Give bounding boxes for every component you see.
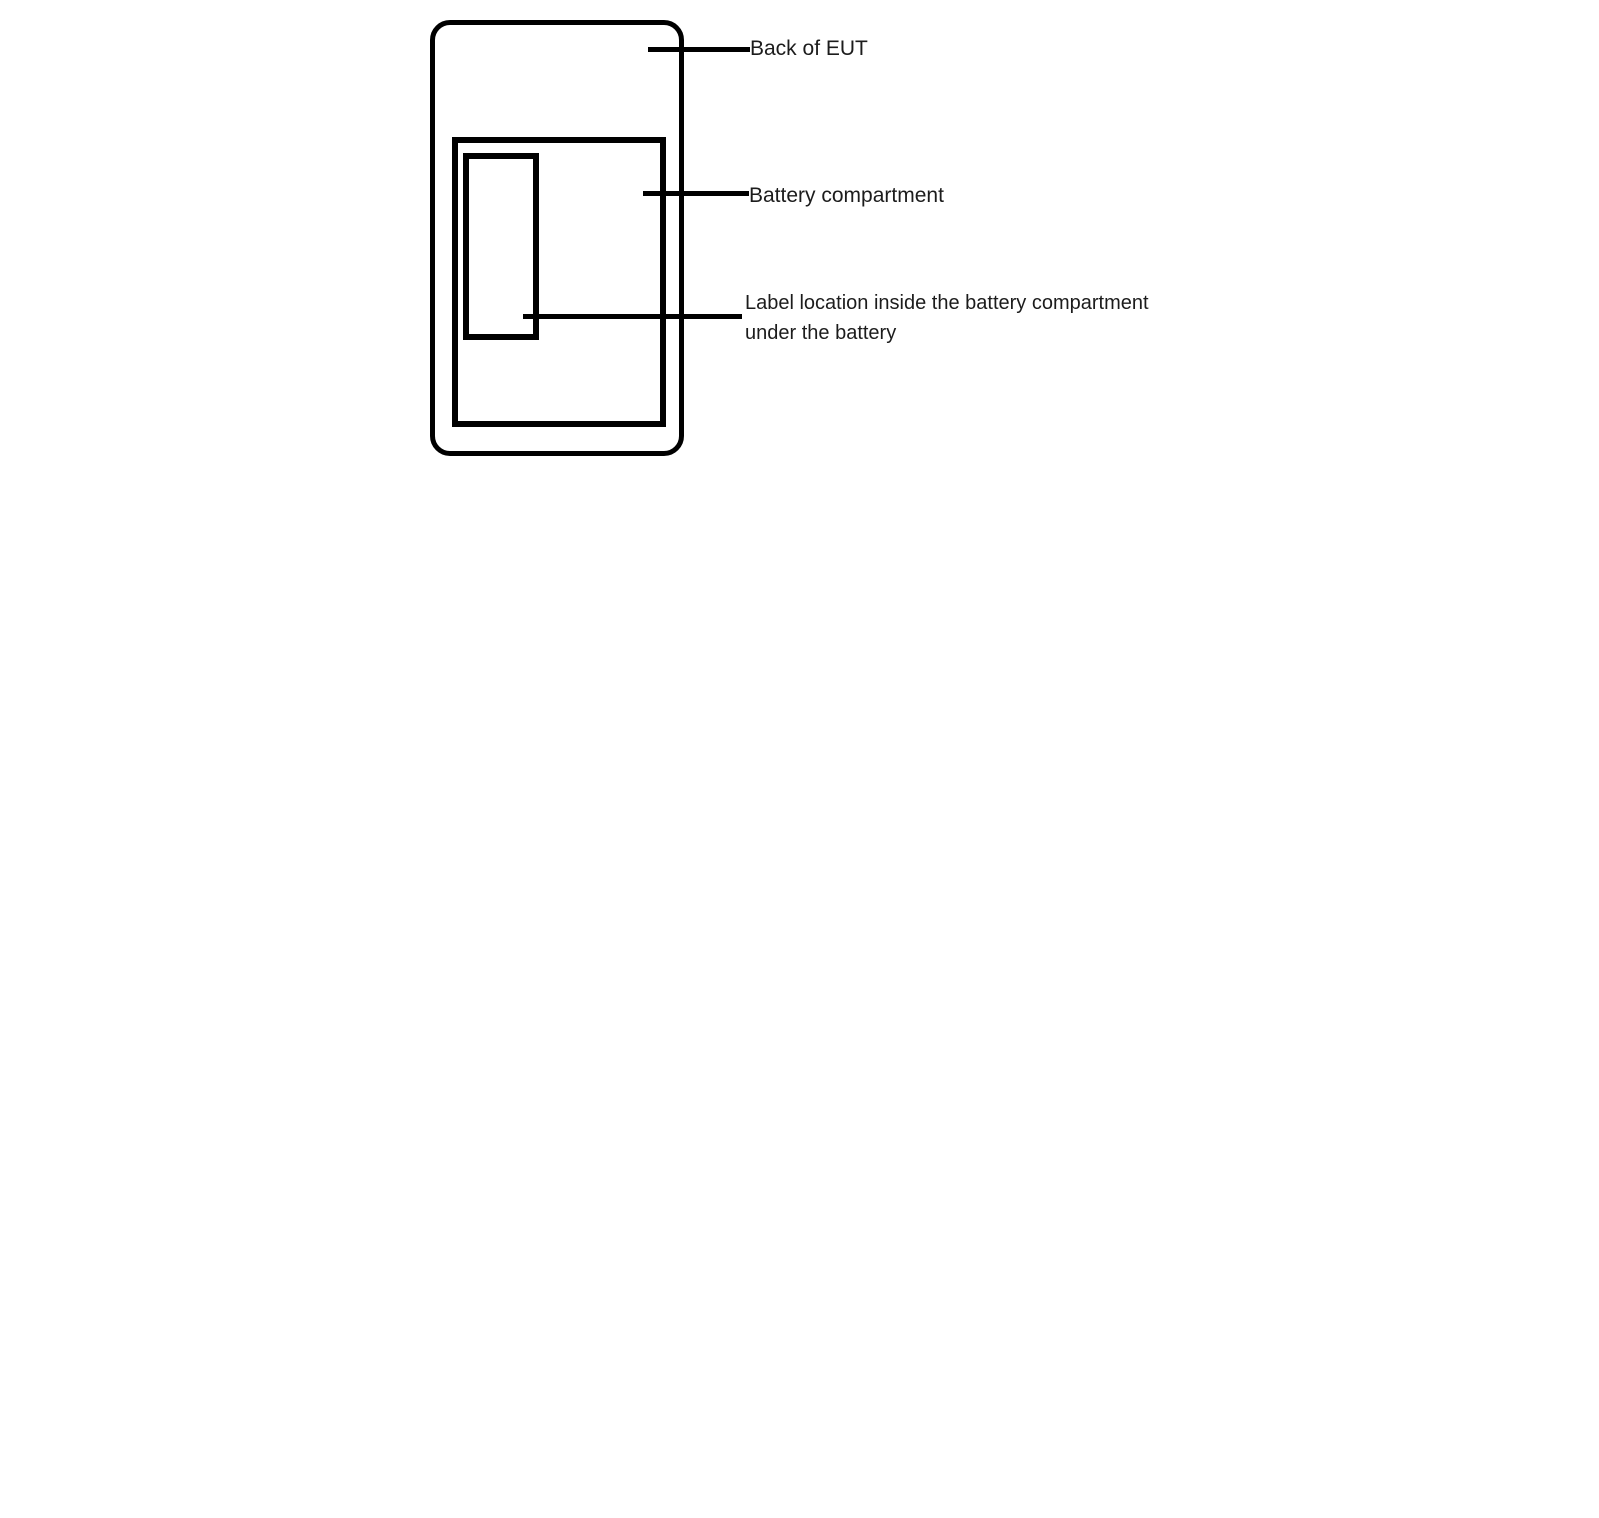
battery-compartment-leader-line <box>643 191 749 196</box>
label-location-outline <box>463 153 539 340</box>
label-location-leader-line <box>523 314 742 319</box>
label-location-label-line1: Label location inside the battery compar… <box>745 288 1149 318</box>
back-of-eut-leader-line <box>648 47 750 52</box>
back-of-eut-label: Back of EUT <box>750 36 868 62</box>
document-page: Back of EUT Battery compartment Label lo… <box>0 0 1599 1518</box>
battery-compartment-label: Battery compartment <box>749 183 944 209</box>
label-location-label-line2: under the battery <box>745 318 1149 348</box>
label-location-label: Label location inside the battery compar… <box>745 288 1149 348</box>
label-location-figure: Back of EUT Battery compartment Label lo… <box>0 0 1599 1518</box>
